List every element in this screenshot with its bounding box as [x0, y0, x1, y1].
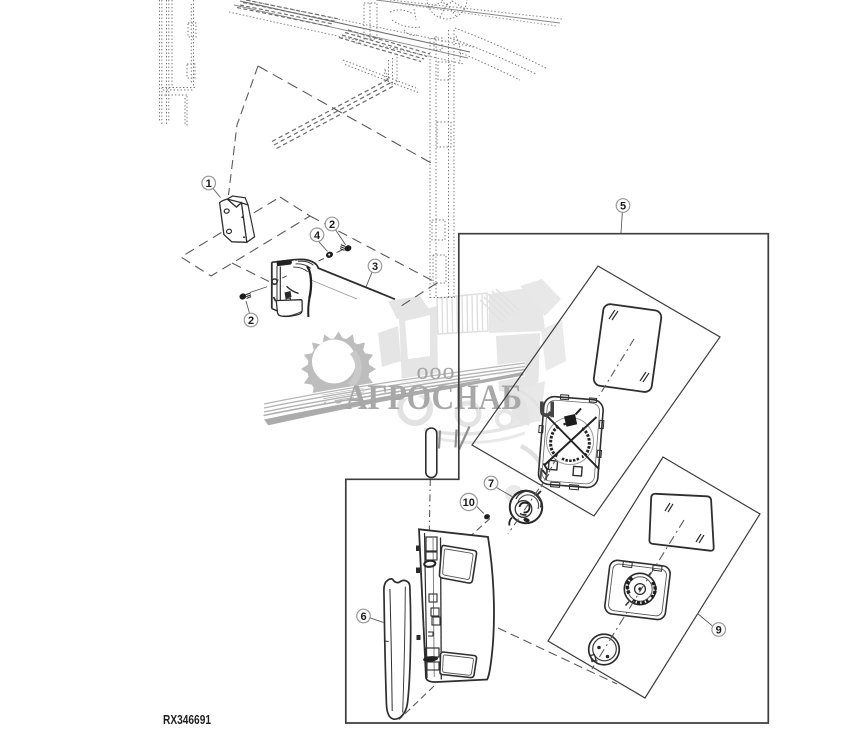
svg-text:1: 1 [206, 178, 212, 190]
svg-text:9: 9 [716, 625, 722, 637]
svg-text:4: 4 [314, 230, 321, 242]
svg-text:10: 10 [463, 497, 475, 509]
svg-text:3: 3 [372, 261, 378, 273]
svg-text:RX346691: RX346691 [163, 713, 211, 727]
svg-text:6: 6 [360, 611, 366, 623]
svg-text:5: 5 [620, 201, 626, 213]
svg-text:7: 7 [488, 478, 494, 490]
svg-text:2: 2 [329, 219, 335, 231]
svg-text:2: 2 [248, 315, 254, 327]
